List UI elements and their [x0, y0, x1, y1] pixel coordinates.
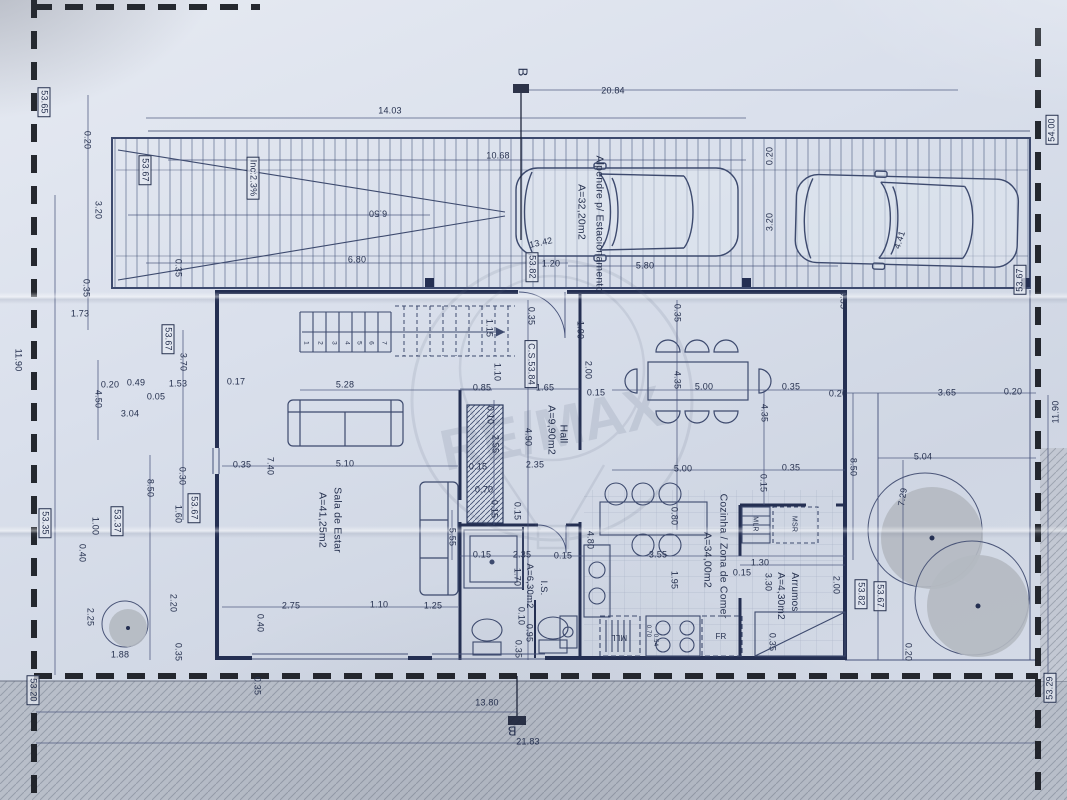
dim-label: 0.15 [759, 474, 768, 492]
elevation-label: C.S.53.84 [525, 340, 538, 388]
room-area-alpendre: A=32,20m2 [576, 184, 587, 240]
dim-label: 3.70 [179, 353, 188, 371]
dim-label: 1.53 [169, 380, 187, 389]
elevation-label: 53.20 [27, 675, 40, 705]
elevation-label: 53.67 [1014, 265, 1027, 295]
dim-label: 1.73 [71, 310, 89, 319]
dim-label: 1.30 [751, 559, 769, 568]
dim-label: 0.20 [904, 643, 913, 661]
dim-label: 1.15 [485, 319, 494, 337]
dim-label: 1.25 [424, 602, 442, 611]
dim-label: 1.65 [536, 384, 554, 393]
dim-label: 11.90 [14, 349, 23, 372]
dim-label: 1.00 [91, 517, 100, 535]
stair-step-number: 5 [355, 341, 362, 345]
dim-label: 2.35 [513, 551, 531, 560]
room-label-hall: Hall [558, 425, 569, 444]
elevation-label: 53.82 [526, 252, 539, 282]
room-label-arrumos: Arrumos [789, 572, 799, 611]
dim-label: 0.95 [525, 624, 534, 642]
dim-label: 6.50 [369, 209, 387, 218]
room-label-alpendre: Alpendre p/ Estacionamento [594, 155, 605, 292]
dim-label: 0.20 [83, 131, 92, 149]
dim-label: 0.35 [514, 640, 523, 658]
dim-label: 5.00 [674, 465, 692, 474]
dim-label: 5.10 [336, 460, 354, 469]
dim-label: 1.60 [174, 505, 183, 523]
dim-label: 5.55 [448, 528, 457, 546]
dim-label: 0.35 [782, 383, 800, 392]
dim-label: 0.20 [1004, 388, 1022, 397]
dimension-labels-layer: B20.8414.0310.68Inc:2.3%53.6753.650.203.… [0, 0, 1067, 800]
dim-label: 0.35 [82, 279, 91, 297]
elevation-label: 53.67 [874, 581, 887, 611]
stair-step-number: 7 [380, 341, 387, 345]
dim-label: 0.35 [253, 677, 262, 695]
dim-label: 0.20 [101, 381, 119, 390]
dim-label: 0.15 [473, 551, 491, 560]
dim-label: 0.35 [174, 643, 183, 661]
dim-label: 0.10 [486, 406, 495, 424]
elevation-label: 53.82 [855, 579, 868, 609]
dim-label: 0.15 [554, 552, 572, 561]
dim-label: 0.85 [473, 384, 491, 393]
dim-label: 3.55 [649, 551, 667, 560]
dim-label: 0.20 [829, 390, 847, 399]
dim-label: 0.05 [147, 393, 165, 402]
dim-label: 5.80 [636, 262, 654, 271]
dim-label: 21.83 [516, 738, 540, 747]
dim-label: 3.65 [938, 389, 956, 398]
dim-label: 0.15 [513, 502, 522, 520]
dim-label: 2.00 [584, 361, 593, 379]
room-area-hall: A=9,90m2 [546, 405, 557, 455]
dim-label: 6.80 [348, 256, 366, 265]
dim-label: 0.15 [469, 463, 487, 472]
ramp-slope-label: Inc:2.3% [247, 157, 260, 200]
stair-step-number: 1 [302, 341, 309, 345]
dim-label: 7.40 [266, 457, 275, 475]
dim-label: 1.10 [370, 601, 388, 610]
section-marker-bottom: B [508, 725, 517, 738]
appliance-label-fridge: FR [715, 633, 726, 641]
dim-label: 2.75 [282, 602, 300, 611]
elevation-label: 53.37 [111, 506, 124, 536]
dim-label: 1.70 [513, 568, 522, 586]
room-area-cozinha: A=34,00m2 [702, 532, 713, 588]
dim-label: 20.84 [601, 87, 625, 96]
dim-label: 5.28 [336, 381, 354, 390]
dim-label: 0.35 [768, 633, 777, 651]
dim-label: 2.25 [86, 608, 95, 626]
dim-label: 1.20 [542, 260, 560, 269]
dim-label: 2.00 [832, 576, 841, 594]
room-area-is: A=6,30m2 [524, 563, 534, 608]
section-marker-top: B [517, 68, 530, 77]
dim-label: 3.20 [766, 213, 775, 231]
elevation-label: 54.00 [1046, 115, 1059, 145]
elevation-label: 53.29 [1044, 673, 1057, 703]
dim-label: 1.10 [493, 363, 502, 381]
dim-label: 0.10 [517, 607, 526, 625]
room-label-cozinha: Cozinha / Zona de Comer [718, 494, 729, 619]
dim-label: 4.35 [673, 371, 682, 389]
dim-label: 1.00 [576, 321, 585, 339]
room-area-arrumos: A=4,30m2 [775, 572, 785, 619]
dim-label: 0.80 [670, 507, 679, 525]
dim-label: 0.40 [256, 614, 265, 632]
stair-step-number: 3 [330, 341, 337, 345]
dim-label: 3.20 [94, 201, 103, 219]
dim-label: 13.80 [475, 699, 499, 708]
dim-label: 0.17 [227, 378, 245, 387]
dim-label: 4.41 [893, 230, 907, 250]
dim-label: 0.35 [673, 304, 682, 322]
dim-label: 5.00 [695, 383, 713, 392]
stair-step-number: 6 [367, 341, 374, 345]
dim-label: 2.55 [491, 435, 500, 453]
dim-label: 2.35 [526, 461, 544, 470]
dim-label: 0.30 [178, 467, 187, 485]
dim-label: 1.88 [111, 651, 129, 660]
dim-label: 3.30 [764, 573, 773, 591]
dim-label: 0.49 [127, 379, 145, 388]
elevation-label: 53.65 [38, 87, 51, 117]
elevation-label: 53.67 [188, 493, 201, 523]
dim-label: 8.50 [146, 479, 155, 497]
dim-label: 5.04 [914, 453, 932, 462]
dim-label: 0.15 [733, 569, 751, 578]
dim-label: 0.35 [782, 464, 800, 473]
elevation-label: 53.35 [39, 508, 52, 538]
dim-label: 0.15 [490, 500, 499, 518]
dim-label: 0.70 [645, 625, 651, 637]
elevation-label: 53.67 [162, 324, 175, 354]
dim-label: 0.15 [587, 389, 605, 398]
elevation-label: 53.67 [139, 155, 152, 185]
dim-label: 0.20 [766, 147, 775, 165]
dim-label: 8.50 [849, 458, 858, 476]
dim-label: 2.20 [169, 594, 178, 612]
dim-label: 0.35 [839, 291, 848, 309]
appliance-label-dishwasher: MLL [611, 633, 627, 641]
dim-label: 4.50 [94, 390, 103, 408]
dim-label: 10.68 [486, 152, 510, 161]
closet-label: MLR [752, 516, 759, 531]
dim-label: 7.29 [897, 487, 909, 507]
blueprint-photo: RE/MAX B20.8414.0310.68Inc:2.3%53.6753.6… [0, 0, 1067, 800]
dim-label: 0.40 [78, 544, 87, 562]
dim-label: 13.42 [529, 236, 554, 250]
room-label-sala: Sala de Estar [332, 487, 343, 553]
stair-step-number: 2 [316, 341, 323, 345]
dim-label: 0.35 [233, 461, 251, 470]
dim-label: 14.03 [378, 107, 402, 116]
closet-label: MSR [791, 516, 798, 532]
dim-label: 0.54 [652, 634, 658, 646]
dim-label: 1.95 [670, 571, 679, 589]
dim-label: 0.35 [527, 307, 536, 325]
room-area-sala: A=41,25m2 [317, 492, 328, 548]
dim-label: 0.35 [174, 259, 183, 277]
dim-label: 0.70 [475, 486, 493, 495]
dim-label: 4.80 [586, 531, 595, 549]
dim-label: 4.35 [760, 404, 769, 422]
dim-label: 3.04 [121, 410, 139, 419]
dim-label: 4.90 [524, 428, 533, 446]
dim-label: 11.90 [1052, 401, 1061, 424]
stair-step-number: 4 [343, 341, 350, 345]
room-label-is: I.S. [538, 580, 548, 595]
